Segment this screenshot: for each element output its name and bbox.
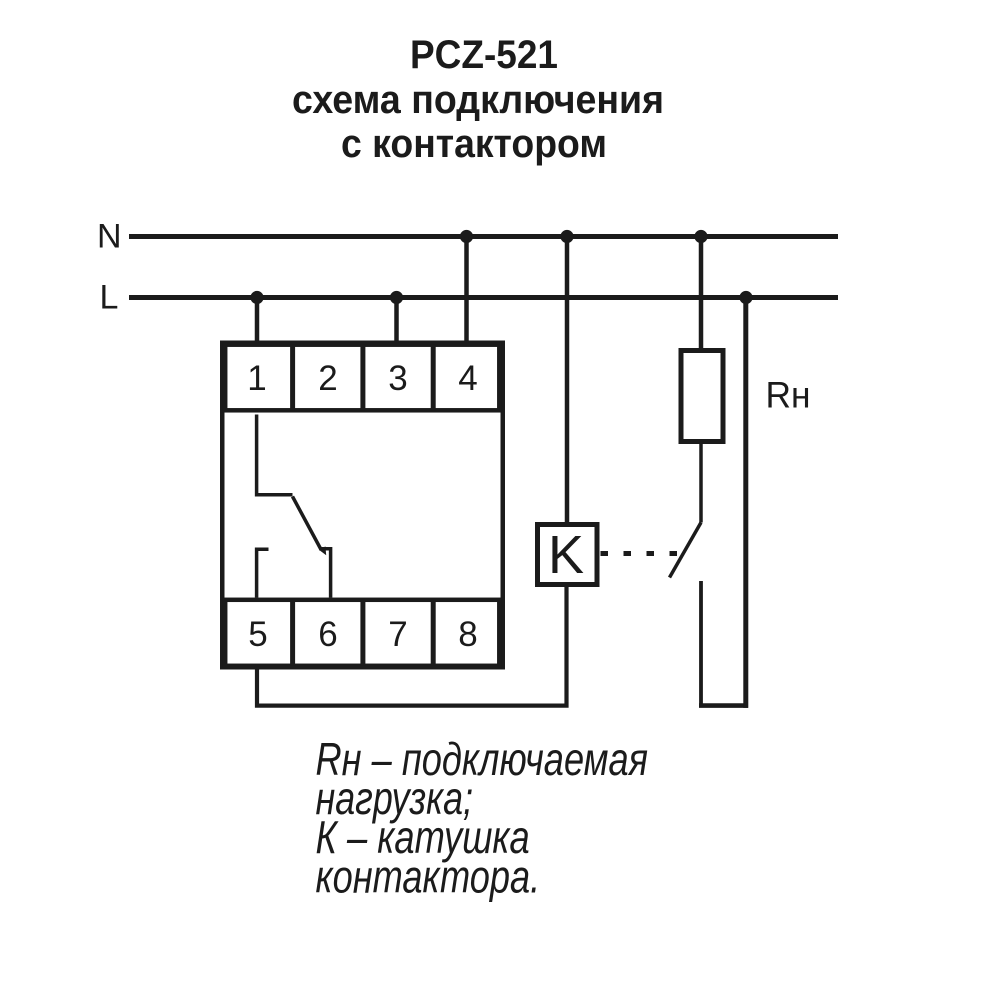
svg-text:K: K (548, 525, 584, 585)
svg-text:5: 5 (248, 615, 267, 654)
svg-text:PCZ-521: PCZ-521 (410, 33, 558, 77)
svg-text:Rн: Rн (766, 375, 811, 416)
svg-text:6: 6 (318, 615, 337, 654)
svg-text:L: L (100, 279, 119, 317)
svg-text:контактора.: контактора. (316, 851, 541, 903)
svg-text:8: 8 (458, 615, 477, 654)
svg-text:схема подключения: схема подключения (292, 78, 664, 122)
svg-text:1: 1 (247, 359, 266, 398)
svg-text:3: 3 (388, 359, 407, 398)
svg-text:4: 4 (458, 359, 477, 398)
svg-text:2: 2 (318, 359, 337, 398)
svg-text:с контактором: с контактором (341, 122, 607, 166)
svg-text:7: 7 (388, 615, 407, 654)
svg-text:N: N (97, 218, 122, 256)
